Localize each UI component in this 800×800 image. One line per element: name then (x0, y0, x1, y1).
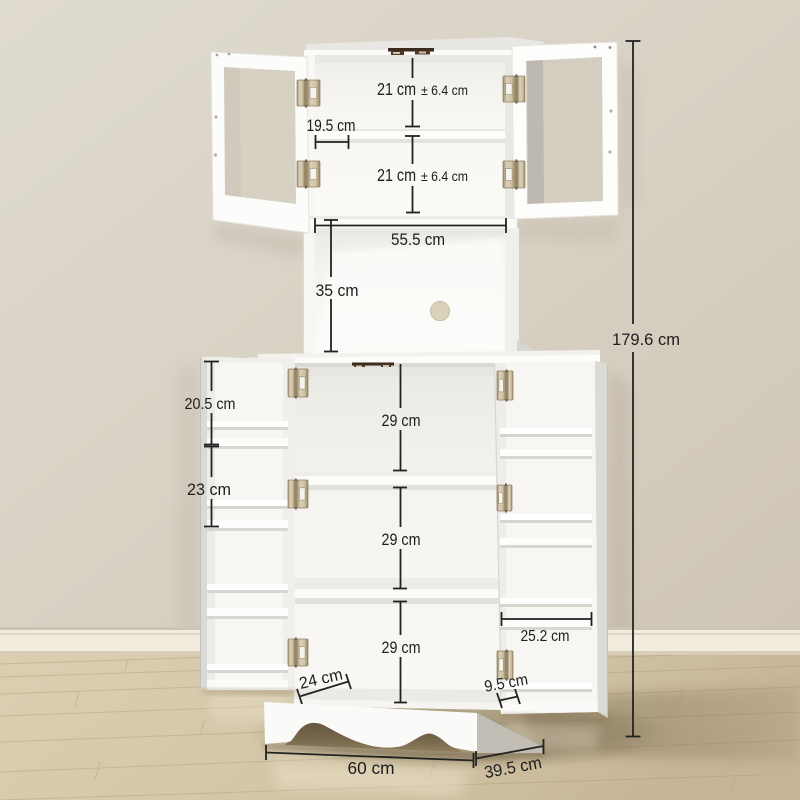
svg-text:21 cm: 21 cm (377, 79, 416, 99)
svg-text:55.5 cm: 55.5 cm (391, 230, 445, 249)
svg-text:20.5 cm: 20.5 cm (185, 396, 236, 413)
svg-text:35 cm: 35 cm (316, 281, 359, 300)
svg-text:19.5 cm: 19.5 cm (307, 117, 356, 135)
svg-text:179.6 cm: 179.6 cm (612, 330, 680, 349)
svg-text:29 cm: 29 cm (382, 411, 421, 430)
svg-text:21 cm: 21 cm (377, 165, 416, 185)
svg-text:29 cm: 29 cm (382, 638, 421, 657)
svg-text:23 cm: 23 cm (187, 481, 231, 499)
svg-text:60 cm: 60 cm (348, 758, 395, 778)
svg-text:25.2 cm: 25.2 cm (521, 628, 570, 645)
svg-text:± 6.4 cm: ± 6.4 cm (421, 83, 468, 98)
svg-text:± 6.4 cm: ± 6.4 cm (421, 169, 468, 184)
svg-text:29 cm: 29 cm (382, 530, 421, 549)
